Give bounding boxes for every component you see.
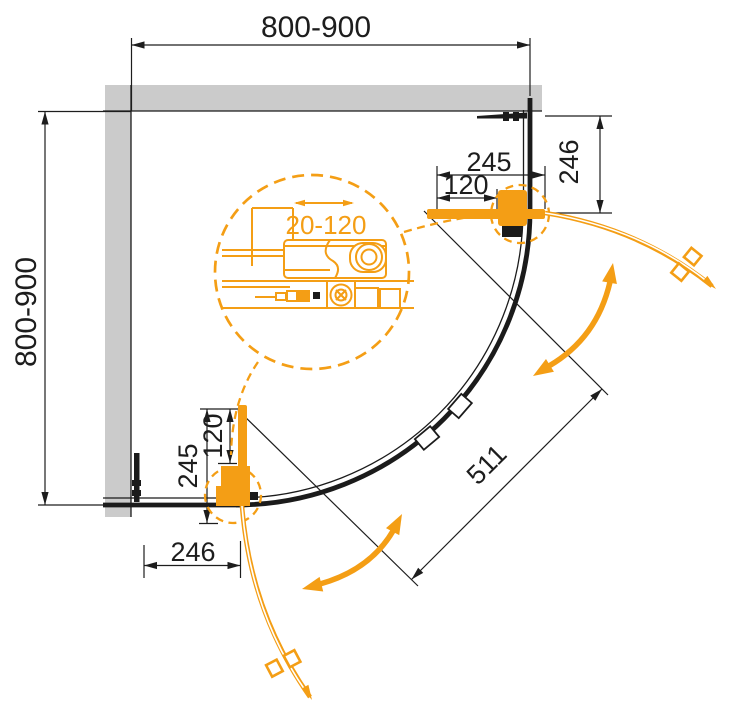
dim-diagonal-511-label: 511 — [461, 439, 513, 491]
dim-bl-246-label: 246 — [170, 537, 215, 567]
wall-top — [105, 85, 542, 111]
wall-left — [105, 85, 131, 517]
dim-bl-120-label: 120 — [198, 413, 228, 458]
dim-tr-120: 120 — [437, 170, 497, 215]
dim-left-depth-label: 800-900 — [10, 257, 43, 367]
adjustment-mechanism: 20-120 — [222, 200, 414, 308]
dim-tr-120-label: 120 — [443, 170, 488, 200]
drawing-svg: 800-900 800-900 245 120 246 — [0, 0, 735, 720]
swing-arrow-top-right — [529, 262, 620, 383]
dim-bl-120: 120 — [198, 409, 237, 464]
glass-clip — [448, 394, 472, 418]
wall-bracket-bottom-left — [132, 453, 141, 502]
dim-tr-246: 246 — [545, 116, 612, 213]
door-top-right — [545, 213, 719, 291]
dim-top-width-label: 800-900 — [261, 11, 371, 44]
wall-bracket-top-right — [477, 112, 527, 121]
dim-bl-246: 246 — [144, 537, 241, 578]
shower-enclosure-plan-drawing: 800-900 800-900 245 120 246 — [0, 0, 735, 720]
door-bottom-left — [242, 506, 316, 702]
adjustment-range-label: 20-120 — [286, 210, 367, 240]
dim-tr-246-label: 246 — [554, 139, 584, 184]
